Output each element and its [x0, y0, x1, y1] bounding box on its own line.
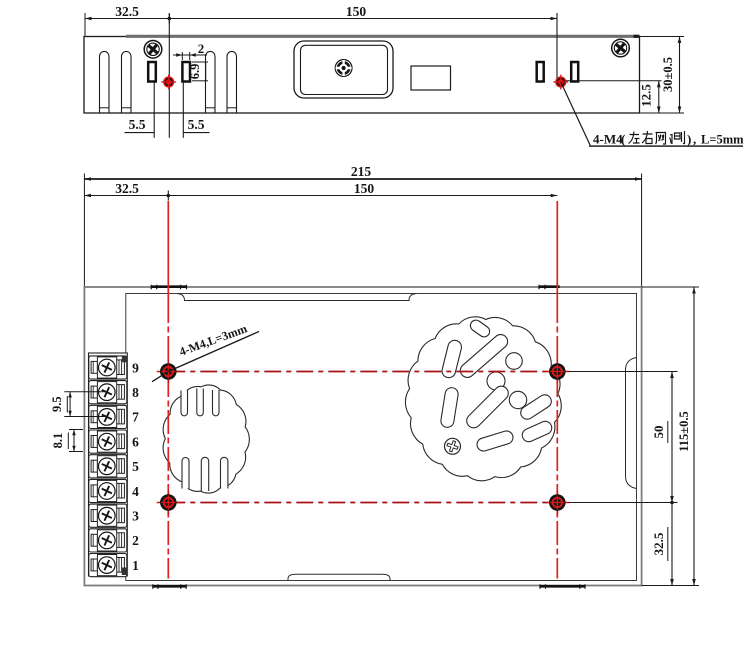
svg-text:150: 150: [346, 4, 367, 19]
svg-text:32.5: 32.5: [115, 181, 139, 196]
svg-text:L=5mm: L=5mm: [701, 133, 744, 147]
svg-text:,: ,: [693, 132, 696, 147]
svg-text:5: 5: [132, 459, 139, 474]
svg-text:1: 1: [132, 558, 139, 573]
svg-text:115±0.5: 115±0.5: [677, 411, 691, 452]
svg-text:4: 4: [132, 484, 139, 499]
svg-text:8: 8: [132, 385, 139, 400]
svg-text:2: 2: [198, 41, 205, 56]
svg-text:6: 6: [132, 434, 139, 449]
svg-text:12.5: 12.5: [639, 84, 654, 107]
svg-text:30±0.5: 30±0.5: [661, 57, 675, 92]
svg-text:4-M4: 4-M4: [593, 132, 623, 147]
svg-text:32.5: 32.5: [115, 4, 139, 19]
svg-text:9.5: 9.5: [50, 396, 64, 412]
svg-text:2: 2: [132, 533, 139, 548]
svg-text:215: 215: [351, 164, 372, 179]
svg-text:5.5: 5.5: [188, 117, 205, 132]
svg-text:50: 50: [651, 426, 666, 439]
svg-text:(: (: [621, 132, 625, 147]
svg-text:): ): [687, 132, 691, 147]
svg-text:7: 7: [132, 410, 139, 425]
svg-text:6.9: 6.9: [188, 64, 202, 80]
svg-text:3: 3: [132, 509, 139, 524]
svg-text:150: 150: [354, 181, 375, 196]
svg-text:8.1: 8.1: [51, 433, 65, 449]
svg-text:32.5: 32.5: [651, 532, 666, 555]
svg-text:9: 9: [132, 360, 139, 375]
svg-text:5.5: 5.5: [129, 117, 146, 132]
